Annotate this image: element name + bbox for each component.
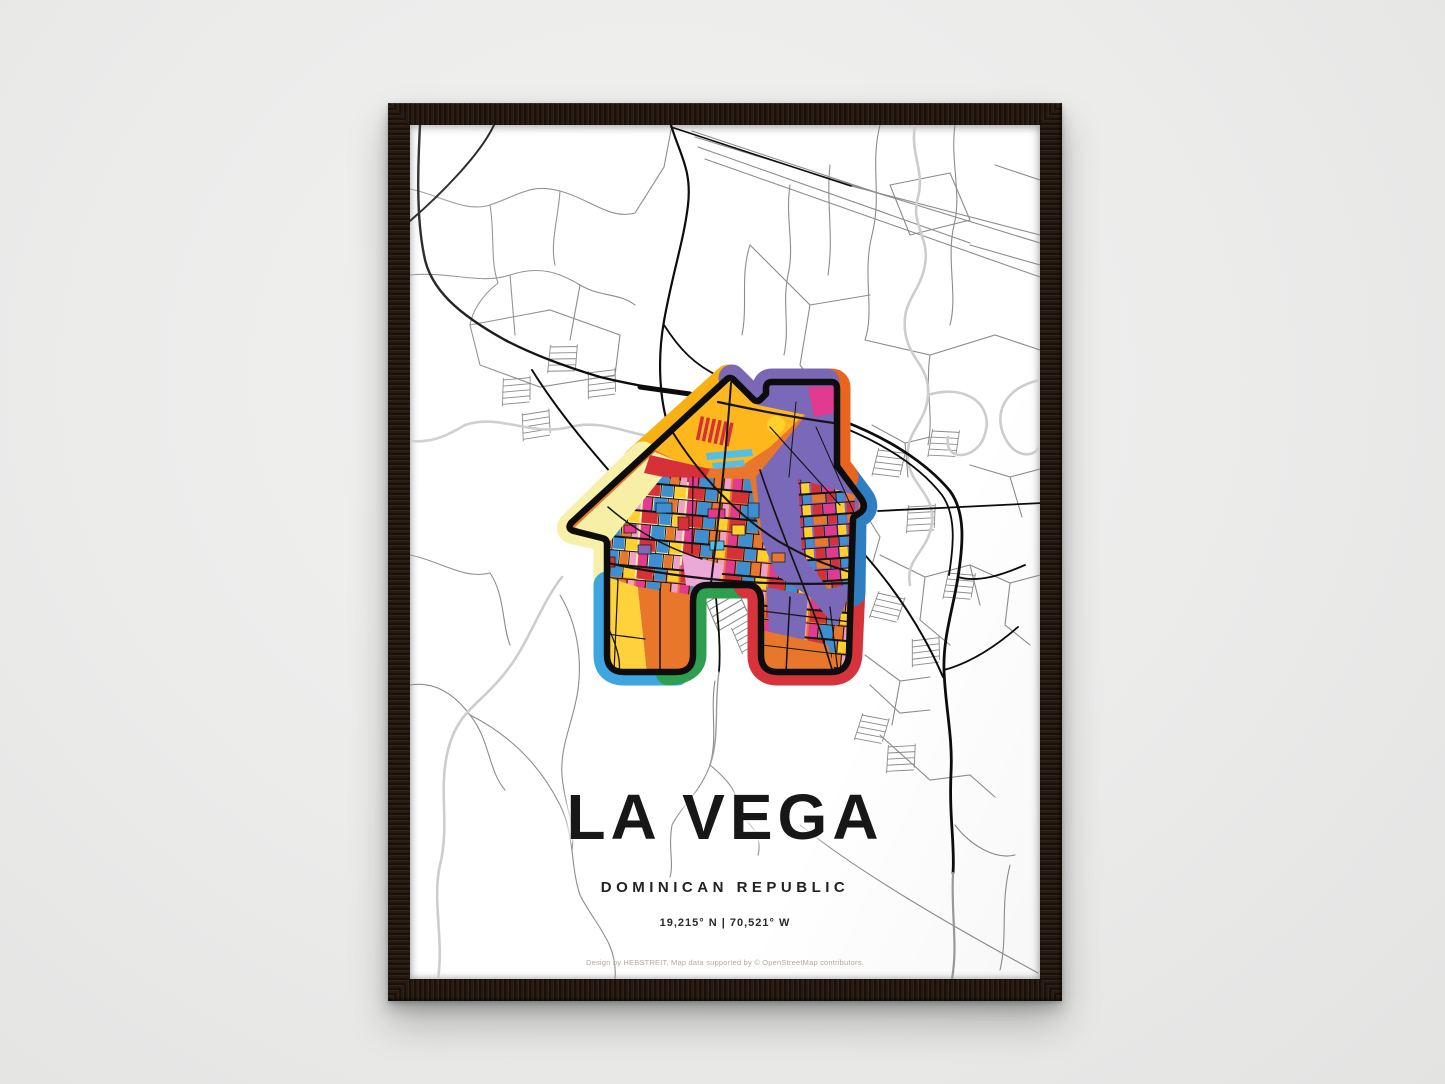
picture-frame: LA VEGA DOMINICAN REPUBLIC 19,215° N | 7… [388,103,1062,1001]
wall: { "scene": { "wall_color": "#ebebea", "f… [0,0,1445,1084]
house-map-motif [550,365,880,685]
background-road-tails [710,672,954,979]
map-artwork [410,125,1040,979]
frame-rail-top [388,103,1062,125]
frame-rail-right [1040,103,1062,1001]
frame-rail-bottom [388,979,1062,1001]
frame-rail-left [388,103,410,1001]
map-poster: LA VEGA DOMINICAN REPUBLIC 19,215° N | 7… [410,125,1040,979]
